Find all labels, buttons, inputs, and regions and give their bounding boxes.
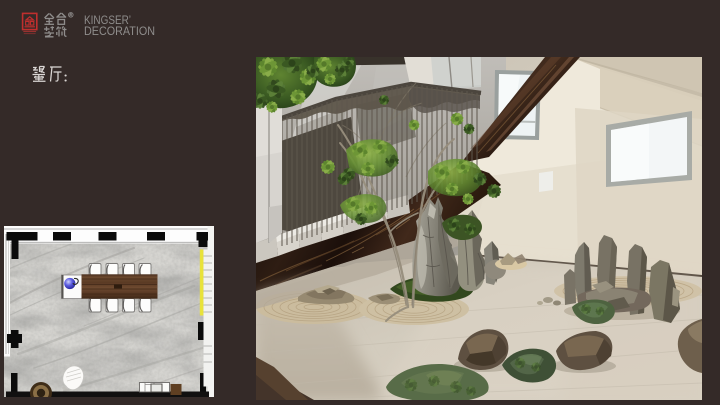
svg-text:DECORATION: DECORATION xyxy=(84,24,155,38)
